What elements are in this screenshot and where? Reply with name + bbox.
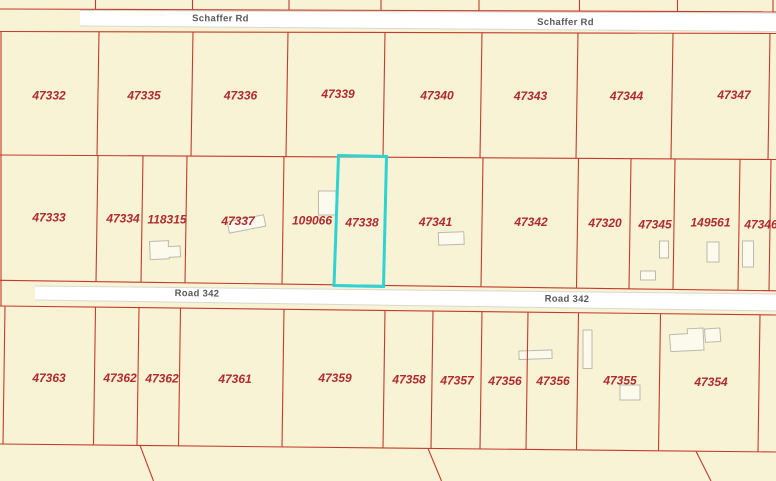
svg-text:Schaffer Rd: Schaffer Rd xyxy=(192,13,249,24)
svg-text:47358: 47358 xyxy=(391,373,426,387)
svg-text:149561: 149561 xyxy=(690,216,730,230)
svg-text:47333: 47333 xyxy=(31,211,66,225)
svg-text:47363: 47363 xyxy=(31,371,66,385)
svg-text:109066: 109066 xyxy=(292,214,332,228)
svg-text:47356: 47356 xyxy=(535,374,570,388)
svg-text:47354: 47354 xyxy=(693,375,728,389)
svg-text:47346: 47346 xyxy=(743,218,776,232)
svg-text:47343: 47343 xyxy=(513,89,548,103)
svg-text:47342: 47342 xyxy=(513,215,548,229)
svg-text:47347: 47347 xyxy=(716,88,752,102)
svg-text:47320: 47320 xyxy=(587,216,622,230)
svg-text:47362: 47362 xyxy=(144,372,179,386)
svg-text:47362: 47362 xyxy=(102,371,137,385)
svg-text:118315: 118315 xyxy=(147,213,186,227)
svg-text:47345: 47345 xyxy=(637,218,672,232)
svg-text:47332: 47332 xyxy=(31,89,66,103)
svg-text:47344: 47344 xyxy=(609,89,644,103)
svg-text:47355: 47355 xyxy=(602,374,637,388)
svg-text:47361: 47361 xyxy=(217,372,252,386)
svg-text:47359: 47359 xyxy=(317,371,352,385)
svg-text:47339: 47339 xyxy=(320,87,355,101)
svg-text:47340: 47340 xyxy=(419,89,454,103)
svg-text:47338: 47338 xyxy=(344,216,379,230)
svg-text:47335: 47335 xyxy=(126,89,161,103)
svg-text:47356: 47356 xyxy=(487,374,522,388)
svg-text:47334: 47334 xyxy=(105,212,140,226)
svg-text:Road 342: Road 342 xyxy=(545,294,590,306)
svg-text:47357: 47357 xyxy=(439,374,475,388)
svg-text:Road 342: Road 342 xyxy=(175,288,220,300)
svg-text:47336: 47336 xyxy=(223,89,258,103)
svg-text:47341: 47341 xyxy=(418,215,453,229)
svg-text:47337: 47337 xyxy=(220,214,256,228)
svg-text:Schaffer Rd: Schaffer Rd xyxy=(537,17,594,28)
